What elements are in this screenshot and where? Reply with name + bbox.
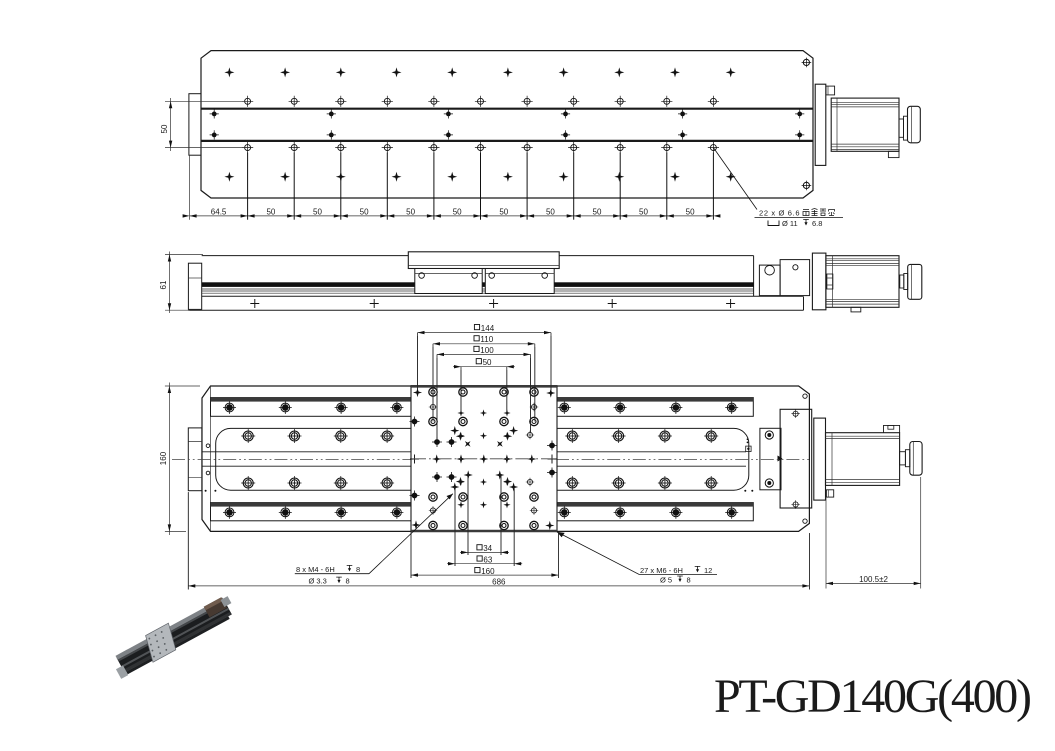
svg-text:50: 50 — [483, 358, 492, 367]
svg-text:100.5±2: 100.5±2 — [859, 575, 888, 584]
svg-text:8: 8 — [687, 575, 691, 584]
svg-text:110: 110 — [480, 335, 493, 344]
svg-text:50: 50 — [686, 207, 695, 216]
svg-text:6.8: 6.8 — [812, 219, 822, 228]
svg-text:50: 50 — [593, 207, 602, 216]
svg-text:PT-GD140G(400): PT-GD140G(400) — [714, 670, 1032, 723]
svg-text:27 x M6 - 6H: 27 x M6 - 6H — [640, 566, 683, 575]
svg-text:144: 144 — [481, 324, 495, 333]
svg-text:50: 50 — [360, 207, 369, 216]
svg-text:Ø 11: Ø 11 — [782, 219, 798, 228]
svg-text:64.5: 64.5 — [211, 207, 227, 216]
svg-text:Ø 5: Ø 5 — [660, 575, 672, 584]
svg-text:8: 8 — [346, 577, 350, 586]
svg-text:50: 50 — [406, 207, 415, 216]
svg-text:22 x Ø 6.6: 22 x Ø 6.6 — [759, 209, 800, 218]
svg-text:50: 50 — [160, 124, 169, 133]
svg-text:34: 34 — [483, 544, 492, 553]
svg-text:50: 50 — [266, 207, 275, 216]
svg-text:100: 100 — [480, 346, 494, 355]
svg-text:50: 50 — [639, 207, 648, 216]
svg-text:686: 686 — [492, 577, 506, 586]
svg-text:50: 50 — [313, 207, 322, 216]
svg-text:50: 50 — [499, 207, 508, 216]
svg-text:8 x M4 - 6H: 8 x M4 - 6H — [296, 565, 335, 574]
svg-text:8: 8 — [356, 565, 360, 574]
svg-text:160: 160 — [481, 567, 495, 576]
svg-text:63: 63 — [483, 555, 492, 564]
svg-text:50: 50 — [546, 207, 555, 216]
svg-text:12: 12 — [704, 566, 712, 575]
svg-text:50: 50 — [453, 207, 462, 216]
svg-text:61: 61 — [159, 280, 168, 289]
svg-text:160: 160 — [159, 451, 168, 465]
svg-text:Ø 3.3: Ø 3.3 — [309, 577, 327, 586]
